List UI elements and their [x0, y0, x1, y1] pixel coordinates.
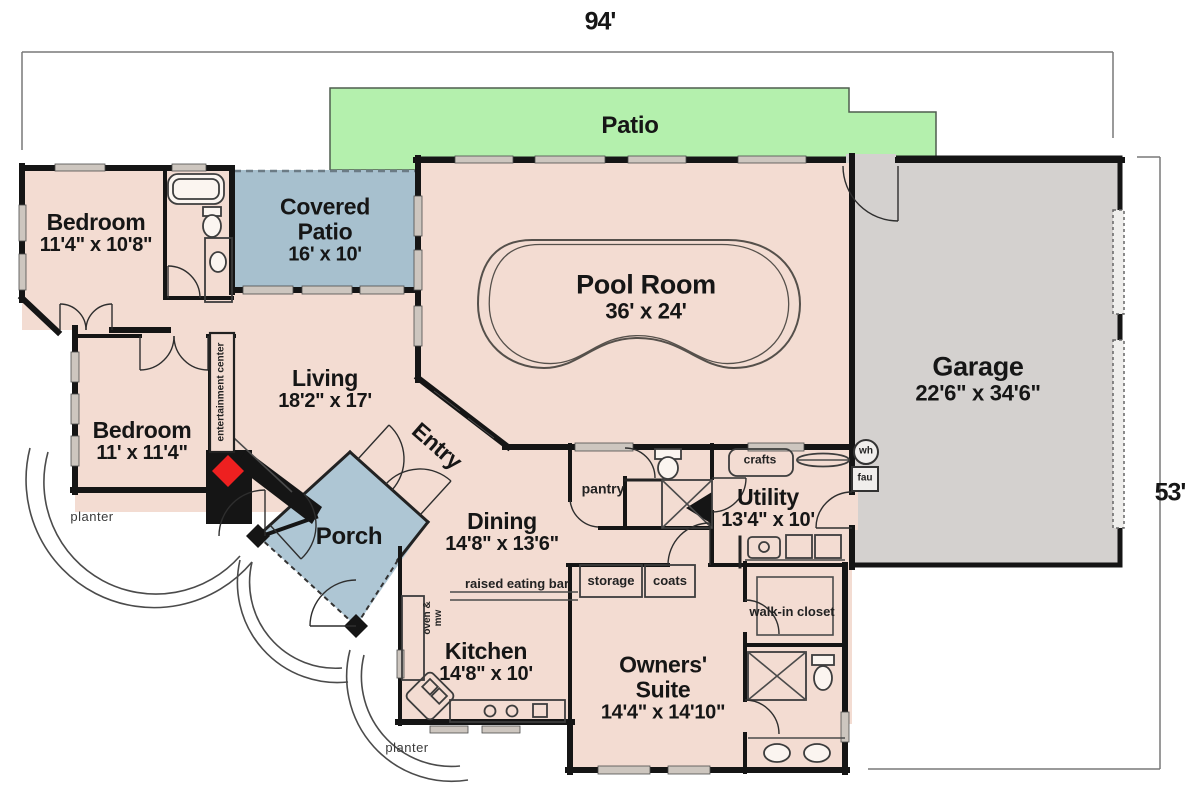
toilet: [658, 457, 678, 479]
water-heater-icon: [854, 440, 878, 464]
toilet: [814, 666, 832, 690]
covered-patio-area: [234, 170, 418, 290]
toilet: [203, 215, 221, 237]
sink: [804, 744, 830, 762]
garage-door-strips: [1113, 210, 1124, 528]
sink: [210, 252, 226, 272]
entertainment-center-cabinet: [210, 333, 234, 452]
garage-area: [852, 158, 1120, 565]
floor-plan: 94' 53' Patio Bedroom 11'4" x 10'8" Cove…: [0, 0, 1200, 792]
sink: [764, 744, 790, 762]
furnace-icon: [852, 467, 878, 491]
floor-plan-canvas: [0, 0, 1200, 792]
toilet-tank: [812, 655, 834, 665]
